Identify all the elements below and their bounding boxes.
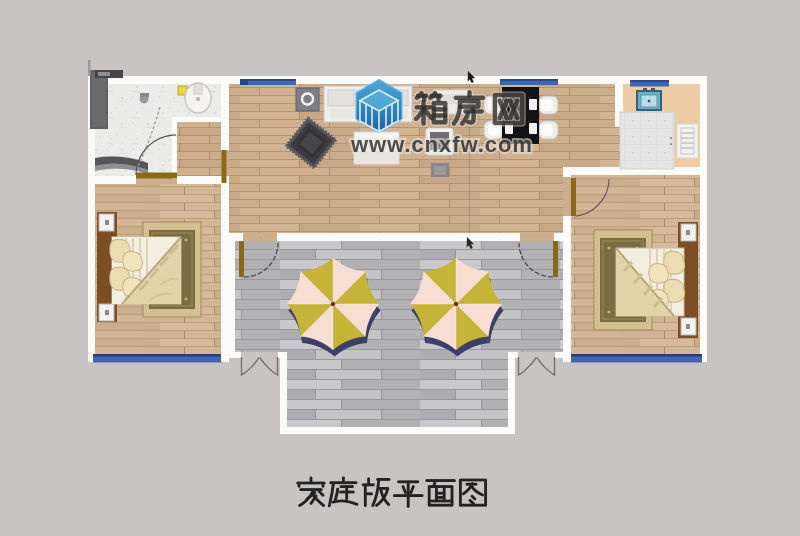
svg-text:www.cnxfw.com: www.cnxfw.com (350, 132, 533, 157)
